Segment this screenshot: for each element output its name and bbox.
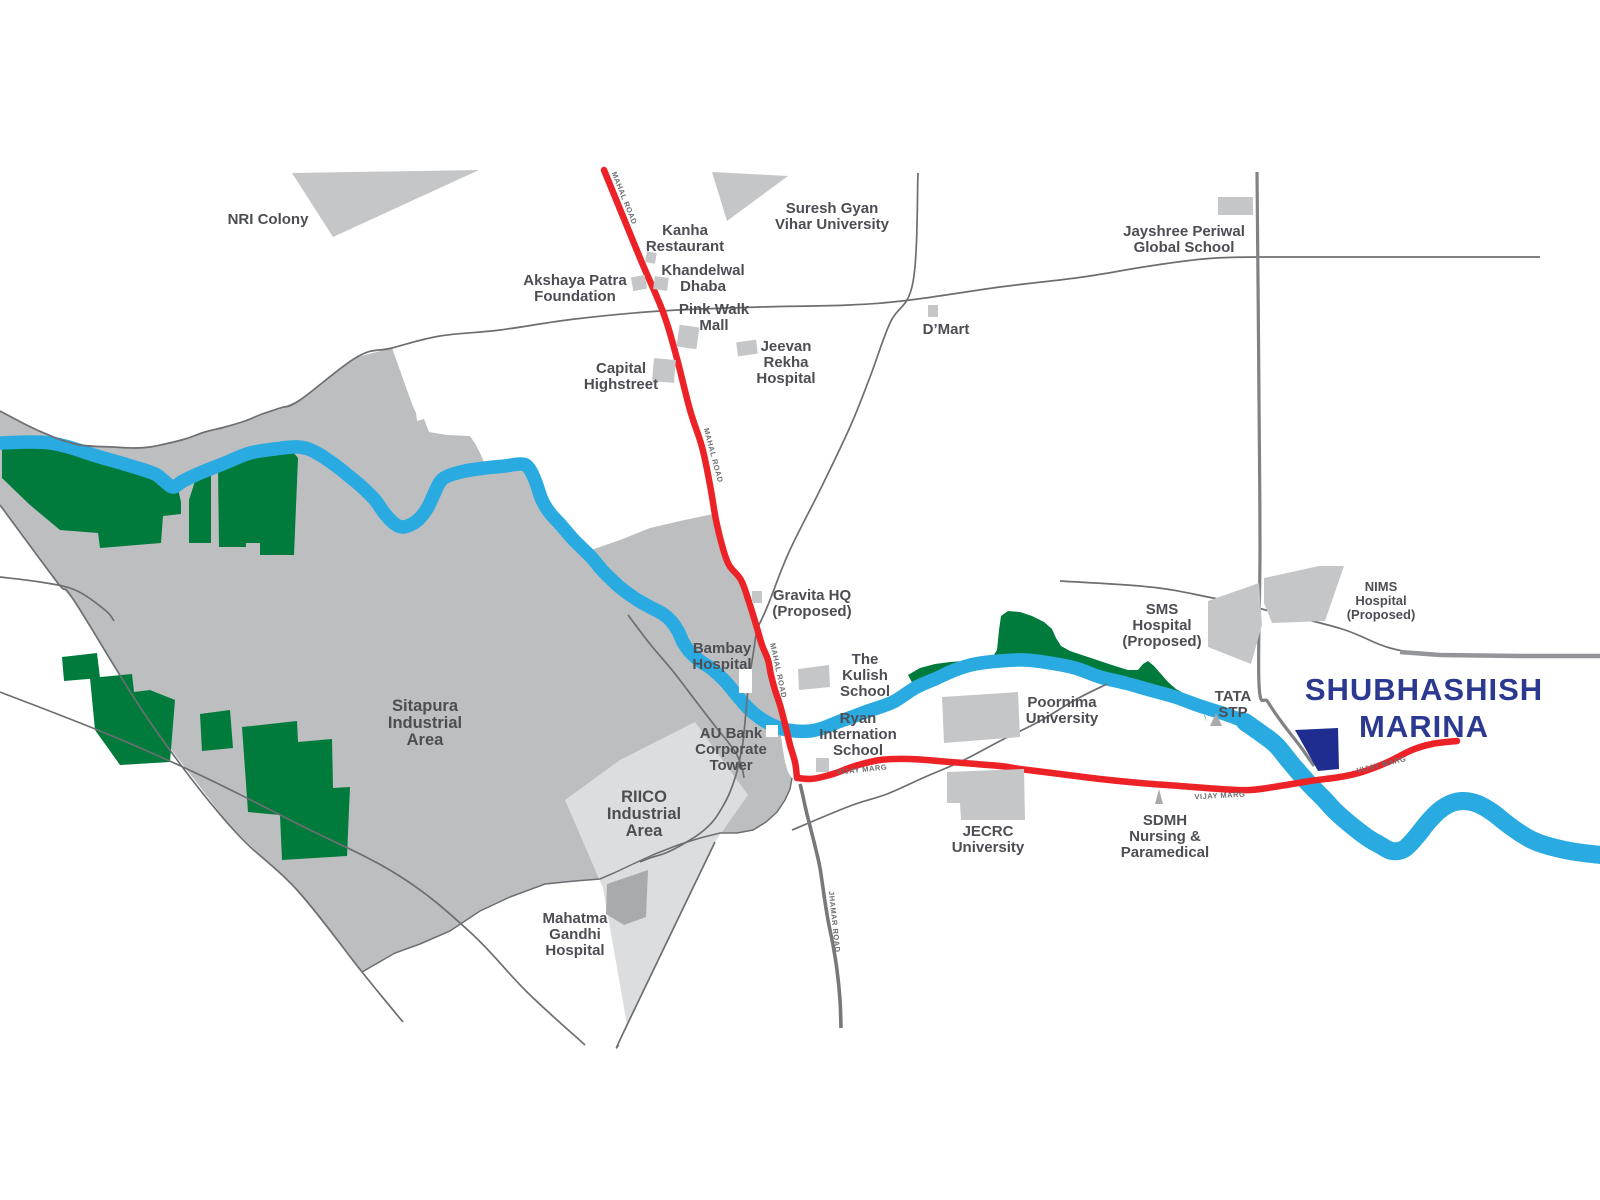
svg-text:Highstreet: Highstreet bbox=[584, 376, 658, 393]
svg-text:SMS: SMS bbox=[1146, 601, 1179, 618]
svg-text:University: University bbox=[952, 839, 1025, 856]
svg-text:Area: Area bbox=[626, 822, 664, 840]
svg-text:(Proposed): (Proposed) bbox=[1347, 607, 1416, 622]
svg-text:SHUBHASHISH: SHUBHASHISH bbox=[1305, 672, 1543, 707]
svg-text:D’Mart: D’Mart bbox=[923, 321, 970, 338]
svg-text:JECRC: JECRC bbox=[963, 823, 1014, 840]
svg-text:Hospital: Hospital bbox=[1355, 593, 1406, 608]
svg-text:Kulish: Kulish bbox=[842, 667, 888, 684]
svg-text:Industrial: Industrial bbox=[388, 714, 462, 732]
svg-text:Vihar University: Vihar University bbox=[775, 216, 890, 233]
svg-text:Capital: Capital bbox=[596, 360, 646, 377]
svg-text:NIMS: NIMS bbox=[1365, 579, 1398, 594]
svg-text:STP: STP bbox=[1218, 704, 1247, 721]
svg-text:Restaurant: Restaurant bbox=[646, 238, 724, 255]
svg-text:Paramedical: Paramedical bbox=[1121, 844, 1209, 861]
svg-text:(Proposed): (Proposed) bbox=[772, 603, 851, 620]
svg-text:Bambay: Bambay bbox=[693, 640, 752, 657]
svg-text:Akshaya Patra: Akshaya Patra bbox=[523, 272, 627, 289]
svg-text:Jayshree Periwal: Jayshree Periwal bbox=[1123, 223, 1245, 240]
svg-text:SDMH: SDMH bbox=[1143, 812, 1187, 829]
svg-text:Hospital: Hospital bbox=[1132, 617, 1191, 634]
svg-text:RIICO: RIICO bbox=[621, 788, 667, 806]
svg-text:Gravita HQ: Gravita HQ bbox=[773, 587, 852, 604]
svg-text:Global School: Global School bbox=[1134, 239, 1235, 256]
svg-text:University: University bbox=[1026, 710, 1099, 727]
svg-text:Mall: Mall bbox=[699, 317, 728, 334]
svg-text:Khandelwal: Khandelwal bbox=[661, 262, 744, 279]
svg-text:School: School bbox=[833, 742, 883, 759]
svg-text:TATA: TATA bbox=[1215, 688, 1252, 705]
svg-text:Industrial: Industrial bbox=[607, 805, 681, 823]
svg-text:Nursing &: Nursing & bbox=[1129, 828, 1201, 845]
svg-text:Mahatma: Mahatma bbox=[542, 910, 608, 927]
svg-text:Dhaba: Dhaba bbox=[680, 278, 727, 295]
svg-text:Corporate: Corporate bbox=[695, 741, 767, 758]
svg-text:MARINA: MARINA bbox=[1359, 709, 1489, 744]
svg-text:Foundation: Foundation bbox=[534, 288, 616, 305]
svg-text:Pink Walk: Pink Walk bbox=[679, 301, 750, 318]
svg-text:Gandhi: Gandhi bbox=[549, 926, 601, 943]
svg-text:Jeevan: Jeevan bbox=[761, 338, 812, 355]
svg-text:(Proposed): (Proposed) bbox=[1122, 633, 1201, 650]
svg-text:NRI Colony: NRI Colony bbox=[228, 211, 309, 228]
svg-text:Kanha: Kanha bbox=[662, 222, 709, 239]
svg-text:Sitapura: Sitapura bbox=[392, 697, 459, 715]
svg-text:Internation: Internation bbox=[819, 726, 897, 743]
svg-text:The: The bbox=[852, 651, 879, 668]
svg-text:School: School bbox=[840, 683, 890, 700]
svg-text:Tower: Tower bbox=[709, 757, 752, 774]
svg-text:Suresh Gyan: Suresh Gyan bbox=[786, 200, 879, 217]
svg-text:Hospital: Hospital bbox=[692, 656, 751, 673]
svg-text:Poornima: Poornima bbox=[1027, 694, 1097, 711]
svg-text:Rekha: Rekha bbox=[763, 354, 809, 371]
svg-text:Ryan: Ryan bbox=[840, 710, 877, 727]
svg-text:AU Bank: AU Bank bbox=[700, 725, 763, 742]
svg-text:Hospital: Hospital bbox=[756, 370, 815, 387]
svg-text:Hospital: Hospital bbox=[545, 942, 604, 959]
svg-text:Area: Area bbox=[407, 731, 445, 749]
